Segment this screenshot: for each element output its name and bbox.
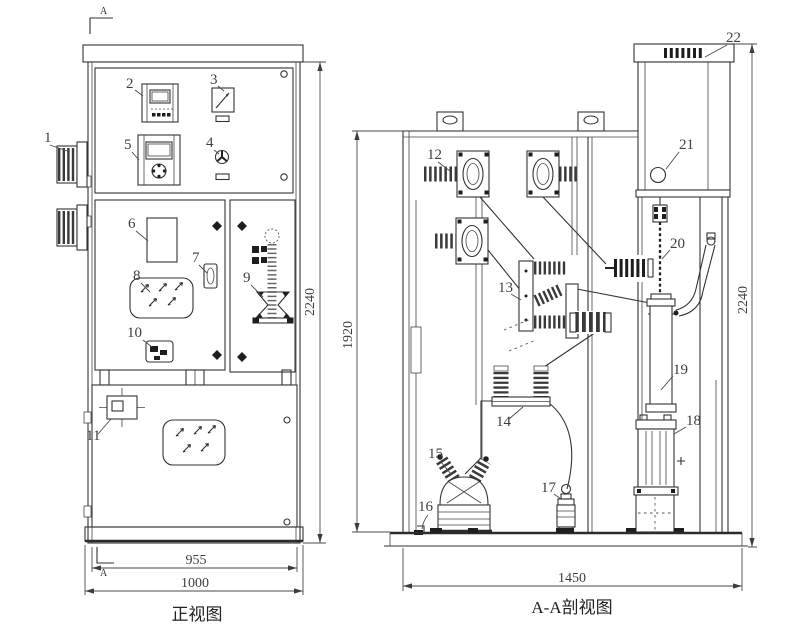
lifting-lug bbox=[578, 112, 604, 131]
front-lower-door bbox=[92, 385, 297, 527]
front-instrument-panel bbox=[95, 68, 293, 193]
callout-7: 7 bbox=[192, 250, 200, 266]
callout-12: 12 bbox=[427, 147, 442, 163]
hinge bbox=[411, 327, 421, 373]
callout-8: 8 bbox=[133, 268, 141, 284]
callout-9: 9 bbox=[243, 270, 251, 286]
dim-section-inner-height: 1920 bbox=[341, 321, 356, 349]
front-view-title: 正视图 bbox=[172, 605, 223, 624]
front-middle-left-door bbox=[95, 200, 225, 370]
front-view: A bbox=[44, 6, 326, 624]
section-mark-bottom: A bbox=[97, 547, 114, 579]
callout-11: 11 bbox=[86, 428, 100, 444]
section-mark-top: A bbox=[90, 6, 113, 34]
dim-section-height: 2240 bbox=[736, 286, 751, 314]
dim-section-width: 1450 bbox=[558, 571, 586, 586]
lifting-lug bbox=[437, 112, 463, 131]
section-mark-top-letter: A bbox=[100, 6, 108, 17]
callout-14: 14 bbox=[496, 414, 512, 430]
disconnector-part13 bbox=[504, 261, 578, 351]
drawing-canvas: A bbox=[0, 0, 787, 627]
dim-front-width: 1000 bbox=[181, 576, 209, 591]
section-view-title: A-A剖视图 bbox=[531, 598, 612, 617]
hinge bbox=[84, 506, 91, 517]
callout-1: 1 bbox=[44, 130, 52, 146]
lv-box bbox=[634, 44, 734, 197]
callout-21: 21 bbox=[679, 137, 694, 153]
busbar-part14 bbox=[492, 366, 550, 406]
insulating-duct-part19 bbox=[646, 299, 676, 412]
front-top-cap bbox=[83, 45, 303, 62]
callout-18: 18 bbox=[686, 413, 701, 429]
conductors bbox=[465, 197, 650, 489]
section-base bbox=[384, 528, 748, 546]
observation-window-part8 bbox=[130, 278, 193, 318]
control-unit-part5 bbox=[138, 135, 180, 185]
relay-device-part2 bbox=[142, 84, 178, 122]
callout-15: 15 bbox=[428, 446, 443, 462]
front-middle-right-panel bbox=[230, 200, 295, 372]
side-bushings-part1 bbox=[57, 142, 87, 250]
callout-16: 16 bbox=[418, 499, 434, 515]
callout-4: 4 bbox=[206, 135, 214, 151]
callout-10: 10 bbox=[127, 325, 142, 341]
dim-front-height: 2240 bbox=[303, 288, 318, 316]
section-mark-bottom-letter: A bbox=[100, 568, 108, 579]
callout-22: 22 bbox=[726, 30, 741, 46]
callout-5: 5 bbox=[124, 137, 132, 153]
callout-2: 2 bbox=[126, 76, 134, 92]
dim-front-inner-width: 955 bbox=[186, 553, 207, 568]
callout-19: 19 bbox=[673, 362, 688, 378]
section-view: 1920 2240 1450 A-A剖视图 12 13 14 15 16 17 … bbox=[341, 30, 757, 617]
hinge bbox=[84, 412, 91, 423]
callout-13: 13 bbox=[498, 280, 513, 296]
callout-3: 3 bbox=[210, 72, 218, 88]
callout-20: 20 bbox=[670, 236, 685, 252]
callout-17: 17 bbox=[541, 480, 557, 496]
observation-window-lower bbox=[163, 420, 225, 465]
surge-arrester-part17 bbox=[557, 485, 575, 533]
switchgear-engineering-drawing: A bbox=[0, 0, 787, 627]
callout-6: 6 bbox=[128, 216, 136, 232]
wall-bushings-part12 bbox=[424, 151, 577, 264]
